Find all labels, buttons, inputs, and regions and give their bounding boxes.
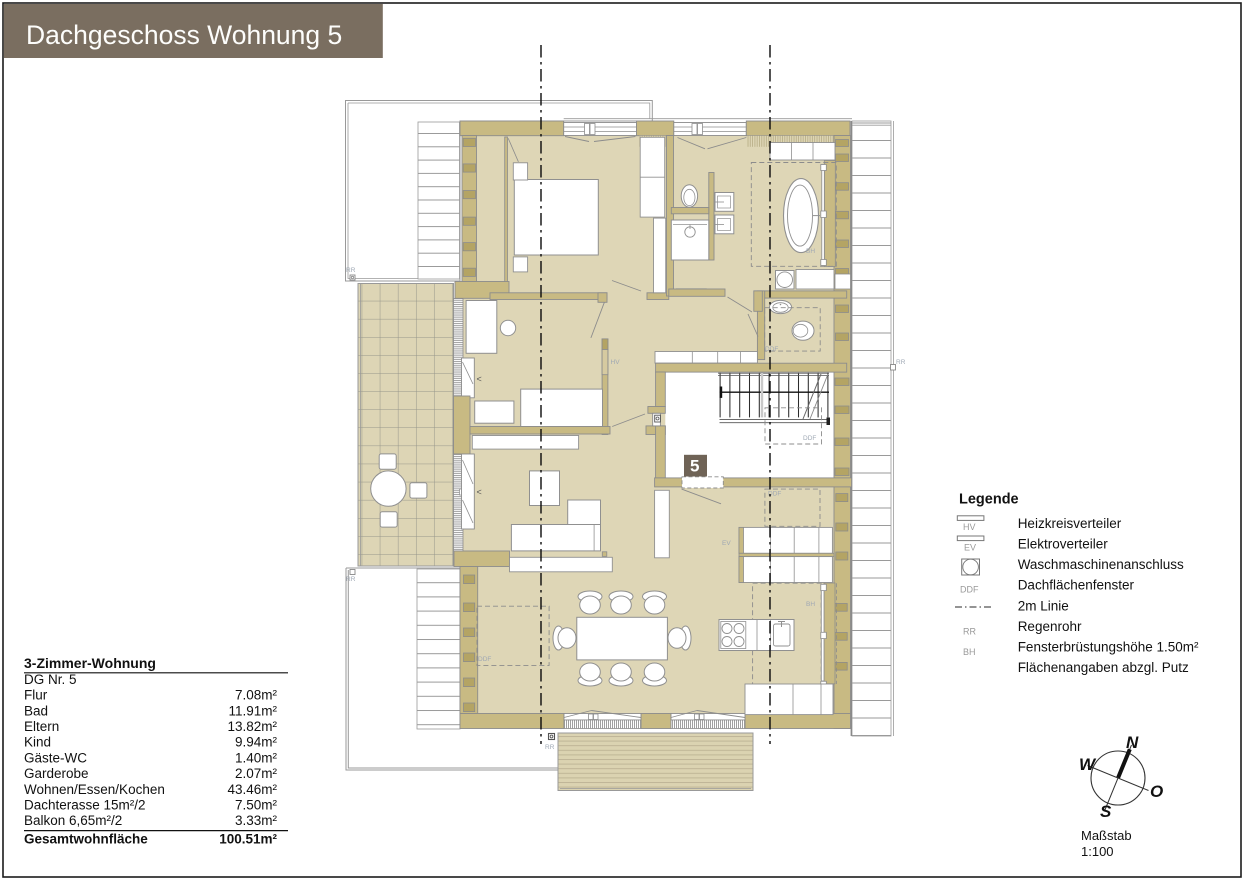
- svg-text:HV: HV: [611, 359, 621, 366]
- svg-text:DG Nr. 5: DG Nr. 5: [24, 672, 77, 687]
- svg-text:Dachflächenfenster: Dachflächenfenster: [1018, 577, 1135, 592]
- svg-text:RR: RR: [346, 576, 356, 583]
- svg-text:DDF: DDF: [803, 435, 816, 442]
- svg-text:Dachgeschoss Wohnung 5: Dachgeschoss Wohnung 5: [26, 20, 342, 50]
- svg-text:S: S: [1100, 802, 1112, 821]
- svg-text:Kind: Kind: [24, 735, 51, 750]
- svg-text:EV: EV: [964, 543, 976, 553]
- svg-text:N: N: [1126, 733, 1139, 752]
- svg-text:1:100: 1:100: [1081, 844, 1114, 859]
- svg-text:Eltern: Eltern: [24, 719, 59, 734]
- svg-text:1.40m²: 1.40m²: [235, 750, 278, 765]
- svg-text:Flur: Flur: [24, 688, 48, 703]
- svg-text:Balkon 6,65m²/2: Balkon 6,65m²/2: [24, 813, 122, 828]
- svg-text:3.33m²: 3.33m²: [235, 813, 278, 828]
- svg-text:43.46m²: 43.46m²: [227, 782, 277, 797]
- svg-text:Wohnen/Essen/Kochen: Wohnen/Essen/Kochen: [24, 782, 165, 797]
- svg-text:RR: RR: [545, 744, 555, 751]
- svg-text:DDF: DDF: [960, 585, 979, 595]
- svg-text:O: O: [1150, 782, 1163, 801]
- svg-text:DDF: DDF: [765, 346, 778, 353]
- svg-text:BH: BH: [806, 248, 815, 255]
- svg-text:13.82m²: 13.82m²: [227, 719, 277, 734]
- svg-text:HV: HV: [963, 522, 976, 532]
- svg-text:BH: BH: [963, 647, 976, 657]
- svg-text:Garderobe: Garderobe: [24, 766, 89, 781]
- svg-text:2.07m²: 2.07m²: [235, 766, 278, 781]
- svg-text:Legende: Legende: [959, 492, 1019, 508]
- svg-text:Fensterbrüstungshöhe 1.50m²: Fensterbrüstungshöhe 1.50m²: [1018, 640, 1199, 655]
- svg-text:Dachterasse 15m²/2: Dachterasse 15m²/2: [24, 798, 146, 813]
- svg-text:BH: BH: [806, 601, 815, 608]
- svg-text:9.94m²: 9.94m²: [235, 735, 278, 750]
- svg-text:W: W: [1079, 755, 1097, 774]
- svg-text:<: <: [477, 374, 482, 384]
- svg-text:5: 5: [690, 457, 699, 476]
- svg-text:Bad: Bad: [24, 703, 48, 718]
- svg-text:RR: RR: [963, 627, 976, 637]
- svg-text:100.51m²: 100.51m²: [219, 831, 277, 846]
- svg-text:11.91m²: 11.91m²: [228, 703, 277, 718]
- svg-text:EV: EV: [722, 540, 731, 547]
- svg-text:Gesamtwohnfläche: Gesamtwohnfläche: [24, 831, 148, 846]
- svg-text:Flächenangaben abzgl. Putz: Flächenangaben abzgl. Putz: [1018, 660, 1189, 675]
- svg-text:2m Linie: 2m Linie: [1018, 598, 1069, 613]
- svg-text:Waschmaschinenanschluss: Waschmaschinenanschluss: [1018, 557, 1184, 572]
- svg-text:<: <: [477, 487, 482, 497]
- svg-text:RR: RR: [896, 359, 906, 366]
- svg-text:Regenrohr: Regenrohr: [1018, 619, 1082, 634]
- svg-text:DDF: DDF: [478, 656, 491, 663]
- svg-text:Heizkreisverteiler: Heizkreisverteiler: [1018, 516, 1122, 531]
- svg-text:RR: RR: [346, 267, 356, 274]
- svg-text:Gäste-WC: Gäste-WC: [24, 750, 87, 765]
- svg-text:Elektroverteiler: Elektroverteiler: [1018, 537, 1109, 552]
- svg-text:Maßstab: Maßstab: [1081, 828, 1132, 843]
- svg-text:7.50m²: 7.50m²: [235, 798, 278, 813]
- svg-text:3-Zimmer-Wohnung: 3-Zimmer-Wohnung: [24, 655, 156, 671]
- svg-text:7.08m²: 7.08m²: [235, 688, 278, 703]
